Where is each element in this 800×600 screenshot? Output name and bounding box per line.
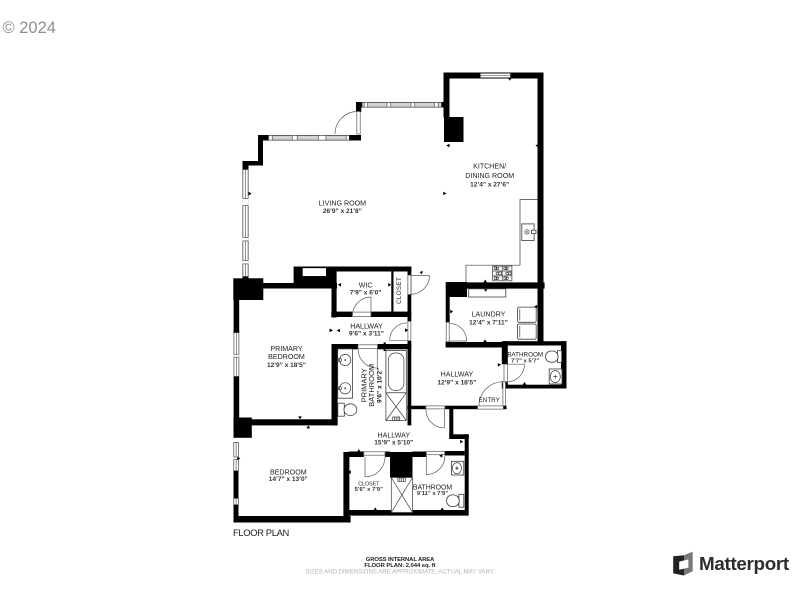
svg-text:ENTRY: ENTRY — [479, 397, 501, 404]
svg-text:BATHROOM: BATHROOM — [507, 352, 543, 359]
svg-text:SIZES AND DIMENSIONS ARE APPRO: SIZES AND DIMENSIONS ARE APPROXIMATE, AC… — [305, 570, 495, 576]
svg-text:© 2024: © 2024 — [3, 19, 56, 37]
svg-text:WIC: WIC — [359, 282, 373, 290]
svg-text:9’6” x 10’2”: 9’6” x 10’2” — [376, 368, 383, 403]
svg-text:LAUNDRY: LAUNDRY — [472, 310, 506, 318]
svg-text:PRIMARY: PRIMARY — [270, 345, 302, 353]
svg-text:FLOOR PLAN: FLOOR PLAN — [233, 527, 289, 538]
svg-text:14’7” x 13’0”: 14’7” x 13’0” — [269, 476, 308, 483]
svg-text:12’9” x 18’5”: 12’9” x 18’5” — [437, 380, 476, 387]
svg-text:HALLWAY: HALLWAY — [378, 431, 411, 439]
svg-text:5’6” x 7’9”: 5’6” x 7’9” — [355, 487, 383, 493]
svg-text:LIVING ROOM: LIVING ROOM — [319, 200, 366, 208]
svg-text:FLOOR PLAN: 2,044 sq. ft: FLOOR PLAN: 2,044 sq. ft — [364, 563, 435, 569]
svg-text:DINING ROOM: DINING ROOM — [465, 172, 514, 180]
svg-text:HALLWAY: HALLWAY — [350, 322, 383, 330]
svg-text:9’11” x 7’9”: 9’11” x 7’9” — [417, 491, 448, 497]
svg-text:26’9” x 21’8”: 26’9” x 21’8” — [323, 208, 362, 215]
svg-text:Matterport: Matterport — [699, 553, 790, 574]
svg-text:BEDROOM: BEDROOM — [268, 353, 305, 361]
svg-text:HALLWAY: HALLWAY — [441, 370, 474, 378]
svg-text:KITCHEN/: KITCHEN/ — [473, 163, 506, 171]
svg-text:BATHROOM: BATHROOM — [367, 364, 376, 407]
svg-text:12’9” x 18’5”: 12’9” x 18’5” — [267, 362, 306, 369]
svg-text:GROSS INTERNAL AREA: GROSS INTERNAL AREA — [366, 557, 435, 563]
svg-text:7’9” x 6’0”: 7’9” x 6’0” — [350, 289, 382, 296]
svg-text:12’4” x 27’6”: 12’4” x 27’6” — [470, 182, 509, 189]
svg-text:9’6” x 3’11”: 9’6” x 3’11” — [349, 331, 384, 338]
svg-text:CLOSET: CLOSET — [396, 277, 403, 304]
svg-text:7’7” x 5’7”: 7’7” x 5’7” — [511, 359, 539, 365]
svg-text:15’9” x 5’10”: 15’9” x 5’10” — [374, 440, 413, 447]
svg-text:12’4” x 7’11”: 12’4” x 7’11” — [469, 319, 508, 326]
